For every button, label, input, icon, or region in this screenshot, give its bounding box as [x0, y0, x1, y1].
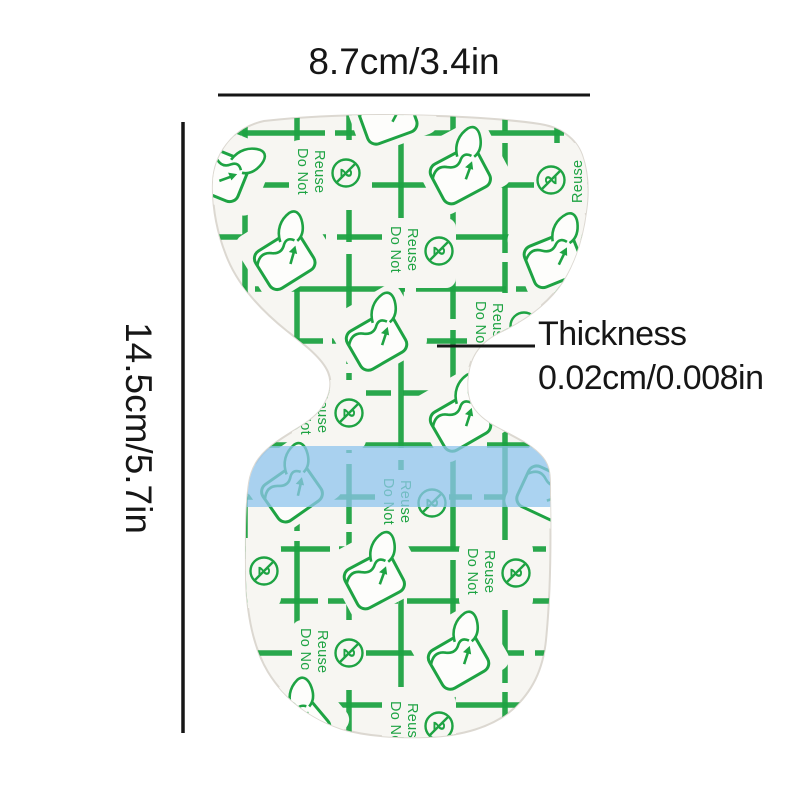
svg-text:Do Not: Do Not: [587, 158, 603, 205]
svg-text:Do Not: Do Not: [294, 148, 310, 195]
product-dimension-image: Do NotReuse2Do NotReuse2Do NotReuse2Do N…: [0, 0, 800, 800]
do-not-reuse-stamp: Do NotReuse2: [382, 218, 456, 288]
svg-text:Reuse: Reuse: [404, 228, 420, 271]
svg-text:Reuse: Reuse: [489, 303, 505, 346]
do-not-reuse-stamp: Do NotReuse2: [207, 538, 281, 608]
thickness-title: Thickness: [538, 315, 687, 353]
svg-text:Reuse: Reuse: [570, 160, 586, 203]
adhesive-strip: [236, 446, 558, 507]
svg-text:Reuse: Reuse: [311, 150, 327, 193]
heel-patch-diagram: Do NotReuse2Do NotReuse2Do NotReuse2Do N…: [0, 0, 800, 800]
svg-text:Do Not: Do Not: [212, 546, 228, 593]
svg-text:Reuse: Reuse: [481, 550, 497, 593]
do-not-reuse-stamp: Do NotReuse2: [467, 293, 541, 363]
svg-text:Reuse: Reuse: [229, 548, 245, 591]
do-not-reuse-stamp: Do NotReuse2: [459, 540, 533, 610]
svg-text:Do Not: Do Not: [464, 548, 480, 595]
svg-text:2: 2: [515, 321, 534, 330]
svg-text:Do Not: Do Not: [297, 388, 313, 435]
svg-text:Reuse: Reuse: [404, 703, 420, 746]
do-not-reuse-stamp: Do NotReuse2: [382, 693, 456, 763]
svg-text:Reuse: Reuse: [314, 630, 330, 673]
svg-text:Do Not: Do Not: [297, 628, 313, 675]
width-dimension-label: 8.7cm/3.4in: [308, 41, 499, 82]
thickness-value: 0.02cm/0.008in: [538, 359, 764, 397]
do-not-reuse-stamp: Do NotReuse2: [289, 140, 363, 210]
height-dimension-label: 14.5cm/5.7in: [118, 322, 159, 534]
svg-text:Do Not: Do Not: [387, 226, 403, 273]
svg-text:Do Not: Do Not: [387, 701, 403, 748]
do-not-reuse-stamp: Do NotReuse2: [534, 143, 608, 213]
svg-text:Do Not: Do Not: [472, 301, 488, 348]
